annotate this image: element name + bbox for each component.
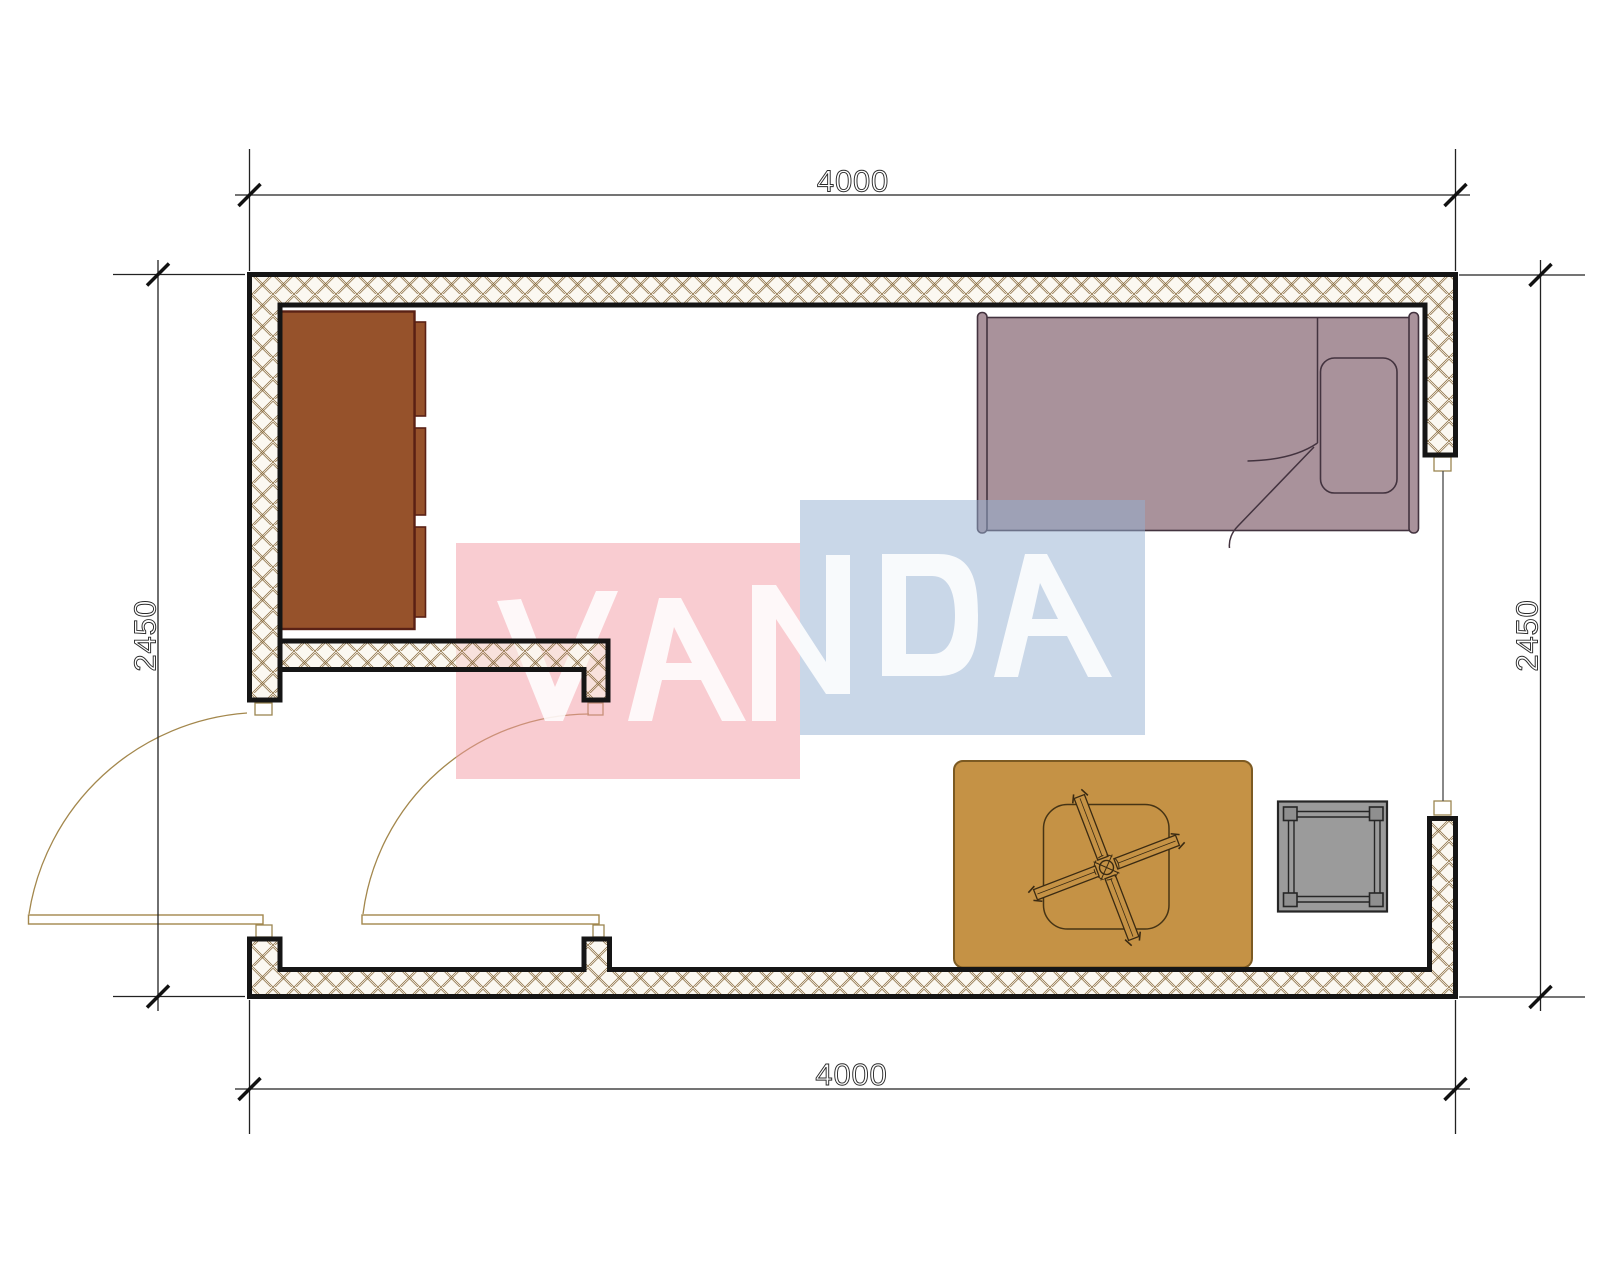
svg-text:2450: 2450 <box>1510 599 1545 671</box>
svg-text:4000: 4000 <box>817 164 889 199</box>
svg-text:4000: 4000 <box>815 1057 887 1092</box>
svg-text:2450: 2450 <box>128 599 163 671</box>
